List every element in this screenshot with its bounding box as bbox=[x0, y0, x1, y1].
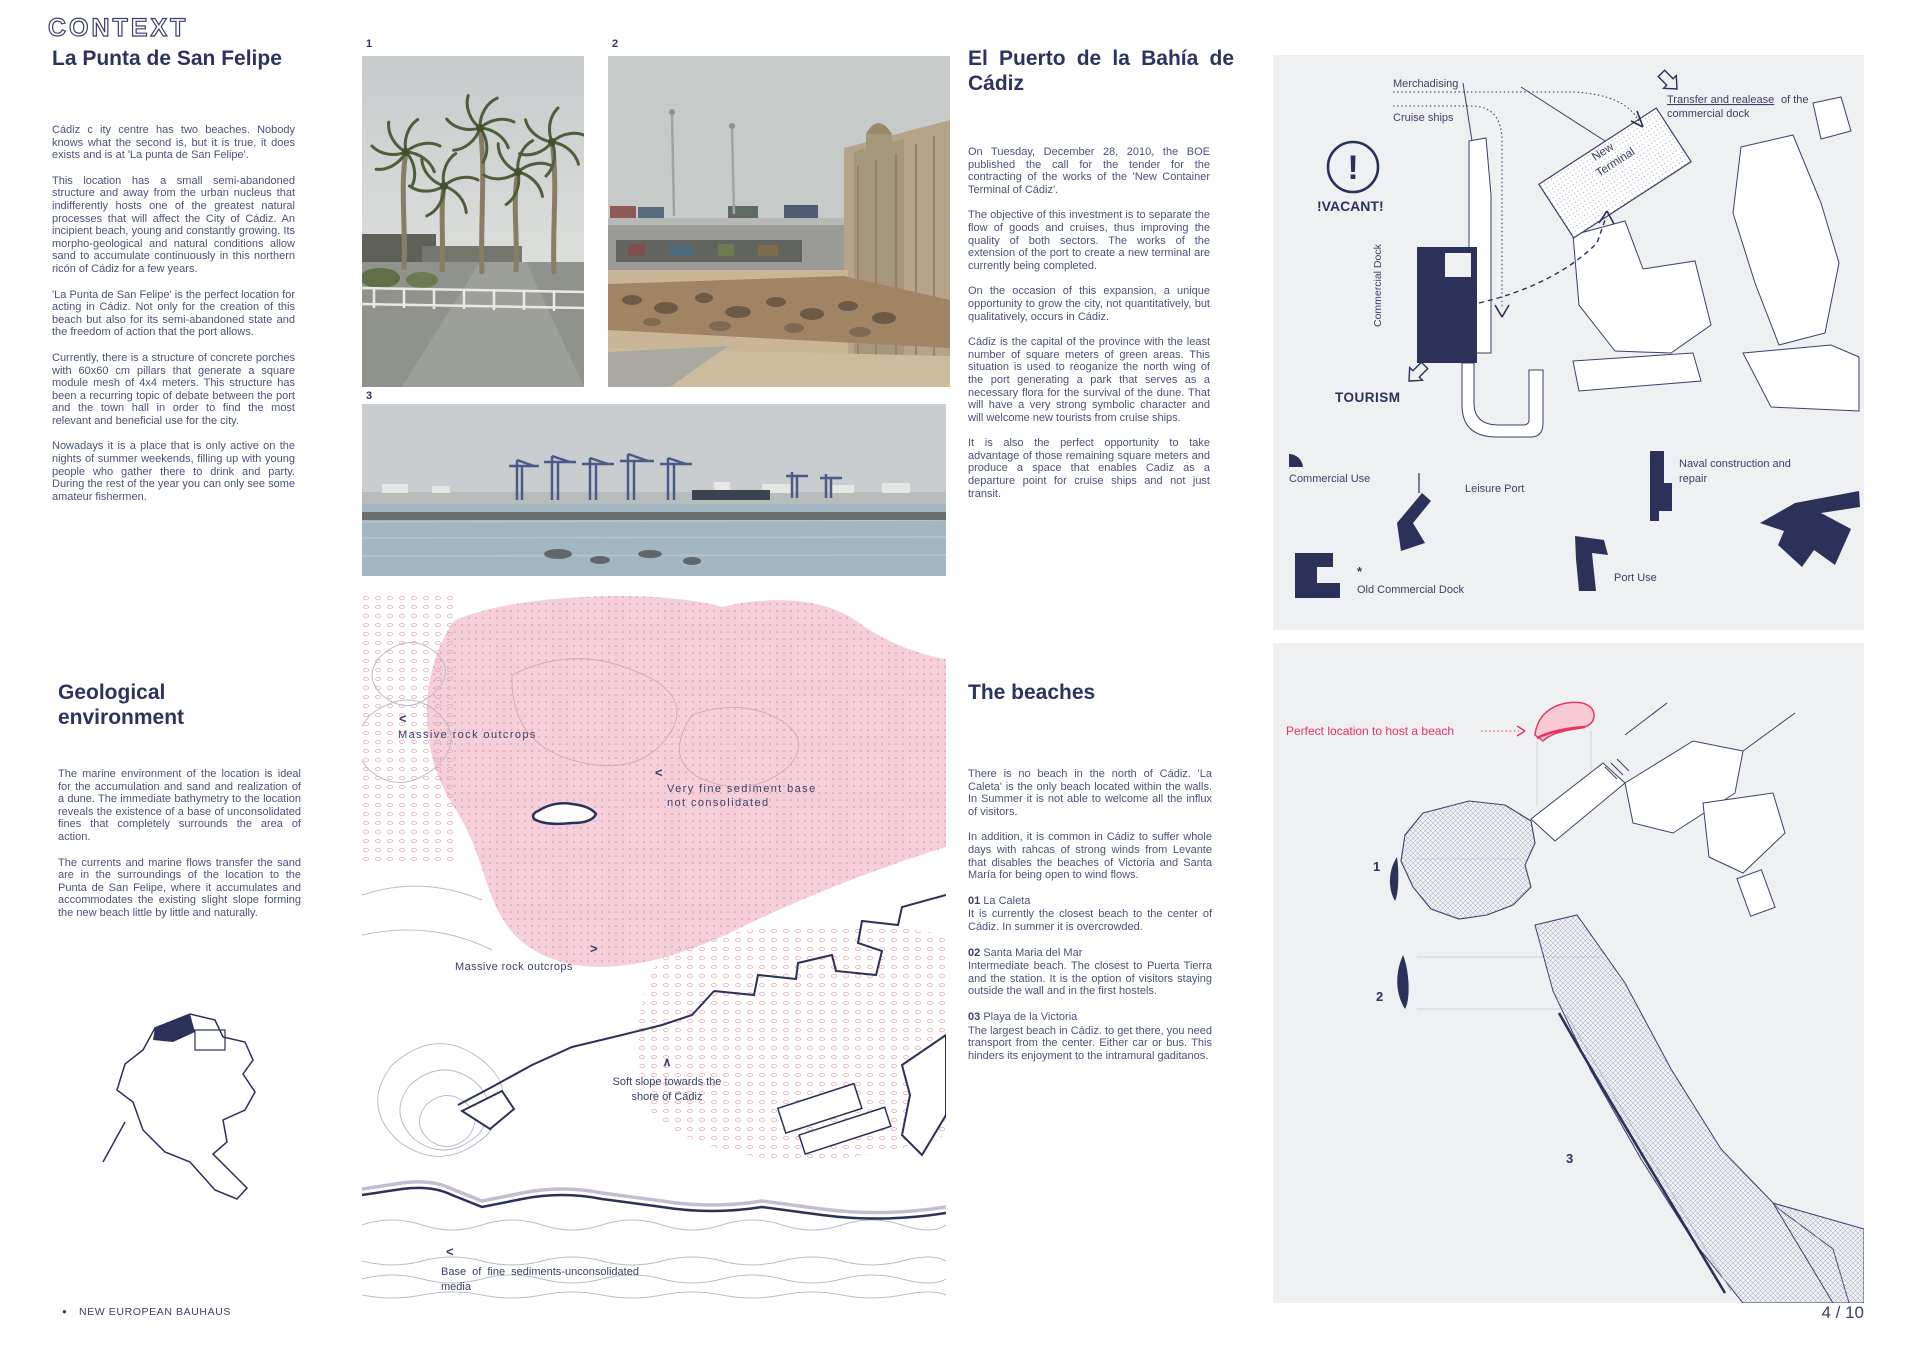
cadiz-inset-map bbox=[95, 1000, 295, 1215]
tourism-arrow-icon bbox=[1403, 359, 1431, 387]
commercial-dock-label: Commercial Dock bbox=[1372, 243, 1384, 327]
bullet-icon: ● bbox=[62, 1307, 67, 1316]
geological-text: The marine environment of the location i… bbox=[58, 768, 301, 933]
vacant-label: !VACANT! bbox=[1317, 198, 1384, 214]
naval-label-line2: repair bbox=[1679, 473, 1707, 485]
arrow-right-icon: > bbox=[590, 941, 598, 956]
old-town-fabric bbox=[1401, 801, 1535, 919]
old-dock-asterisk: * bbox=[1357, 564, 1363, 579]
sediment-label-line1: Very fine sediment base bbox=[667, 783, 817, 795]
paragraph: This location has a small semi-abandoned… bbox=[52, 175, 295, 276]
naval-label-line1: Naval construction and bbox=[1679, 458, 1791, 470]
leisure-port-label: Leisure Port bbox=[1465, 483, 1524, 495]
harbour-illustration bbox=[362, 404, 946, 576]
photo-beach-wall bbox=[608, 56, 950, 387]
page-title: CONTEXT bbox=[48, 14, 188, 43]
poster-page: CONTEXT La Punta de San Felipe Cádiz c i… bbox=[0, 0, 1920, 1357]
paragraph: There is no beach in the north of Cádiz.… bbox=[968, 768, 1212, 818]
paragraph: Currently, there is a structure of concr… bbox=[52, 352, 295, 428]
la-caleta-beach bbox=[1390, 857, 1398, 901]
paragraph: The objective of this investment is to s… bbox=[968, 209, 1210, 272]
santa-maria-beach bbox=[1397, 955, 1408, 1009]
paragraph: 'La Punta de San Felipe' is the perfect … bbox=[52, 289, 295, 339]
arrow-left-icon: < bbox=[399, 711, 407, 726]
slope-label-line2: shore of Cádiz bbox=[632, 1091, 703, 1103]
geological-heading: Geological environment bbox=[58, 680, 184, 730]
city-map-panel: Perfect location to host a beach 1 bbox=[1273, 643, 1864, 1303]
contour-map-illustration: < Massive rock outcrops < Very fine sedi… bbox=[362, 595, 946, 1305]
beaches-heading: The beaches bbox=[968, 680, 1095, 705]
paragraph: On the occasion of this expansion, a uni… bbox=[968, 285, 1210, 323]
beach-wall-illustration bbox=[608, 56, 950, 387]
paragraph: Cádiz c ity centre has two beaches. Nobo… bbox=[52, 124, 295, 162]
paragraph: Cádiz is the capital of the province wit… bbox=[968, 336, 1210, 424]
page-number: 4 / 10 bbox=[1821, 1303, 1864, 1323]
port-diagram-panel: New Terminal ! Merchadising bbox=[1273, 55, 1864, 630]
rock-top-label: Massive rock outcrops bbox=[398, 729, 537, 741]
paragraph: The marine environment of the location i… bbox=[58, 768, 301, 844]
vacant-exclamation-icon: ! bbox=[1347, 149, 1358, 187]
photo-harbour-cranes bbox=[362, 404, 946, 576]
sediment-label-line2: not consolidated bbox=[667, 797, 770, 809]
bottom-coastline bbox=[362, 1188, 946, 1219]
contour-map: < Massive rock outcrops < Very fine sedi… bbox=[362, 595, 946, 1305]
city-map: Perfect location to host a beach 1 bbox=[1273, 643, 1864, 1303]
tourism-label: TOURISM bbox=[1335, 390, 1401, 405]
el-puerto-heading-line1: El Puerto de la Bahía de bbox=[968, 46, 1234, 71]
photo-palm-promenade bbox=[362, 56, 584, 387]
marker-3: 3 bbox=[1566, 1151, 1573, 1166]
cruise-ships-label: Cruise ships bbox=[1393, 112, 1454, 124]
beach-item-la-caleta: 01 La Caleta It is currently the closest… bbox=[968, 895, 1212, 934]
commercial-use-label: Commercial Use bbox=[1289, 473, 1370, 485]
port-quays bbox=[1531, 741, 1785, 916]
port-diagram: New Terminal ! Merchadising bbox=[1273, 55, 1864, 630]
transfer-label-underlined: Transfer and realease bbox=[1667, 94, 1774, 106]
marker-1: 1 bbox=[1373, 859, 1380, 874]
beach-item-victoria: 03 Playa de la Victoria The largest beac… bbox=[968, 1011, 1212, 1062]
la-punta-heading: La Punta de San Felipe bbox=[52, 46, 282, 71]
footer-brand: ● NEW EUROPEAN BAUHAUS bbox=[62, 1306, 231, 1318]
arrow-left-icon: < bbox=[446, 1244, 454, 1259]
el-puerto-text: On Tuesday, December 28, 2010, the BOE p… bbox=[968, 146, 1210, 513]
slope-label-line1: Soft slope towards the bbox=[613, 1076, 722, 1088]
marker-2: 2 bbox=[1376, 989, 1383, 1004]
el-puerto-heading-line2: Cádiz bbox=[968, 71, 1024, 96]
paragraph: On Tuesday, December 28, 2010, the BOE p… bbox=[968, 146, 1210, 196]
base-label-line2: media bbox=[441, 1281, 472, 1293]
paragraph: The currents and marine flows transfer t… bbox=[58, 857, 301, 920]
merchandising-label: Merchadising bbox=[1393, 78, 1458, 90]
port-use-label: Port Use bbox=[1614, 572, 1657, 584]
photo-1-label: 1 bbox=[366, 38, 372, 50]
arrow-left-icon: < bbox=[655, 765, 663, 780]
beach-highlight-label: Perfect location to host a beach bbox=[1286, 724, 1454, 738]
arrow-up-icon: ∧ bbox=[663, 1055, 672, 1069]
beaches-text: There is no beach in the north of Cádiz.… bbox=[968, 768, 1212, 1075]
paragraph: Nowadays it is a place that is only acti… bbox=[52, 440, 295, 503]
old-commercial-dock-label: Old Commercial Dock bbox=[1357, 584, 1464, 596]
transfer-label-line2: commercial dock bbox=[1667, 108, 1750, 120]
palm-promenade-illustration bbox=[362, 56, 584, 387]
new-terminal-block bbox=[1539, 108, 1691, 238]
base-label-line1: Base of fine sediments-unconsolidated bbox=[441, 1266, 639, 1278]
photo-2-label: 2 bbox=[612, 38, 618, 50]
transfer-label-rest: of the bbox=[1781, 94, 1809, 106]
beach-item-santa-maria: 02 Santa Maria del Mar Intermediate beac… bbox=[968, 947, 1212, 998]
rock-mid-label: Massive rock outcrops bbox=[455, 961, 573, 973]
inset-map-illustration bbox=[95, 1000, 295, 1215]
la-punta-text: Cádiz c ity centre has two beaches. Nobo… bbox=[52, 124, 295, 516]
paragraph: It is also the perfect opportunity to ta… bbox=[968, 437, 1210, 500]
legend-shapes bbox=[1289, 451, 1860, 598]
paragraph: In addition, it is common in Cádiz to su… bbox=[968, 831, 1212, 881]
photo-3-label: 3 bbox=[366, 390, 372, 402]
transfer-arrow-icon bbox=[1655, 67, 1683, 95]
